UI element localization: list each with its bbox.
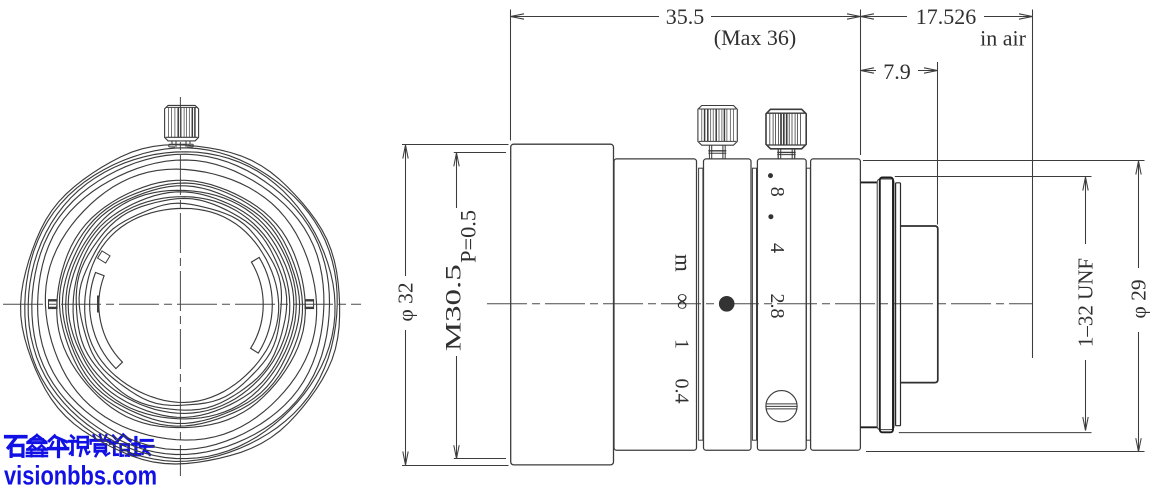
svg-text:φ 29: φ 29 <box>1127 279 1151 318</box>
svg-text:0.4: 0.4 <box>671 379 693 404</box>
svg-text:(Max 36): (Max 36) <box>714 25 796 50</box>
svg-text:1: 1 <box>671 339 693 349</box>
svg-text:35.5: 35.5 <box>666 4 705 29</box>
svg-text:2.8: 2.8 <box>766 294 788 319</box>
svg-text:8: 8 <box>766 187 788 197</box>
svg-text:4: 4 <box>766 243 788 253</box>
svg-text:∞: ∞ <box>671 293 696 309</box>
svg-text:1–32 UNF: 1–32 UNF <box>1073 258 1097 347</box>
svg-text:M30.5: M30.5 <box>440 264 465 351</box>
svg-text:visionbbs.com: visionbbs.com <box>4 460 157 488</box>
svg-text:φ 32: φ 32 <box>394 282 418 321</box>
svg-text:7.9: 7.9 <box>883 59 911 84</box>
svg-text:m: m <box>671 254 696 272</box>
svg-text:in air: in air <box>980 26 1026 51</box>
svg-text:P=0.5: P=0.5 <box>455 210 480 263</box>
svg-text:17.526: 17.526 <box>916 4 977 29</box>
